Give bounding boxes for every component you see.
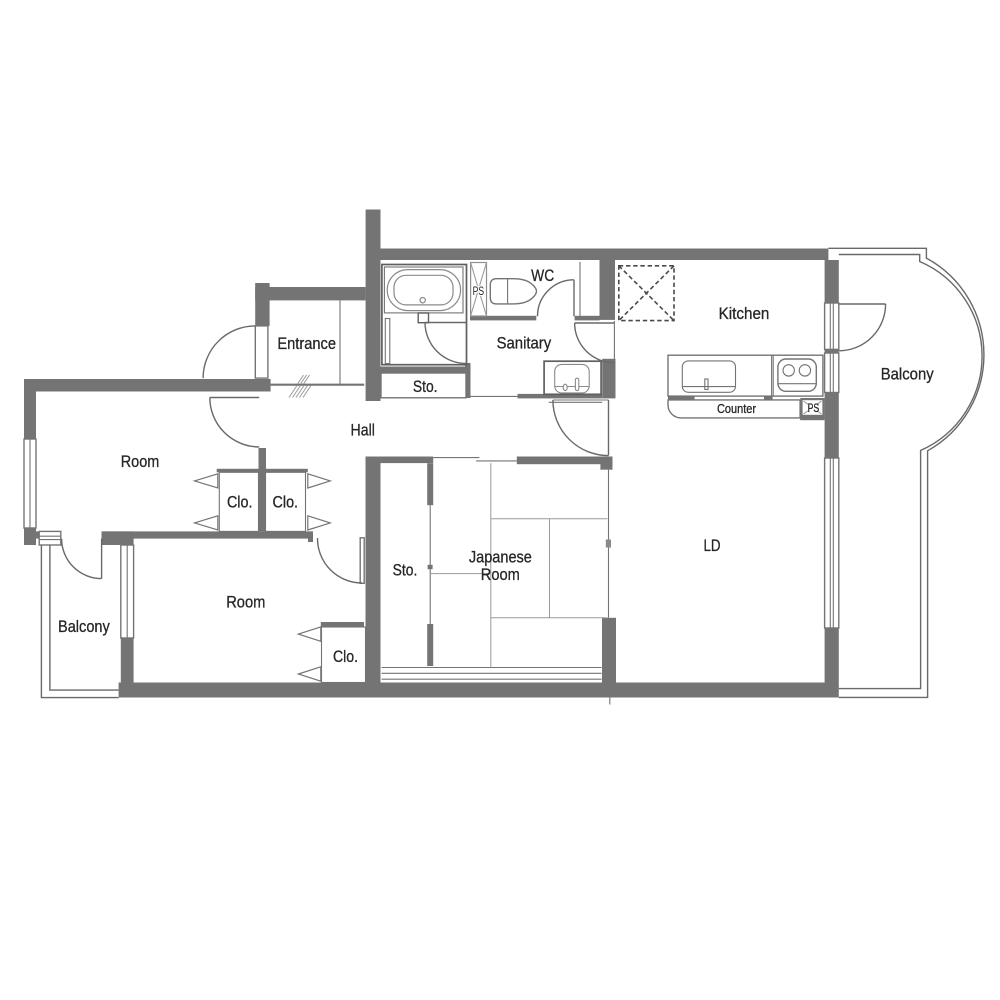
svg-text:Room: Room: [226, 593, 265, 612]
svg-text:Sanitary: Sanitary: [497, 334, 552, 353]
svg-text:Balcony: Balcony: [881, 365, 934, 384]
svg-text:PS: PS: [808, 403, 820, 415]
svg-text:Entrance: Entrance: [277, 334, 336, 353]
svg-text:Balcony: Balcony: [58, 617, 110, 636]
svg-text:Counter: Counter: [717, 401, 757, 416]
svg-text:Room: Room: [481, 565, 520, 584]
svg-text:Kitchen: Kitchen: [719, 304, 770, 323]
svg-text:Japanese: Japanese: [469, 547, 532, 566]
svg-text:Room: Room: [121, 452, 160, 471]
svg-text:Hall: Hall: [351, 421, 375, 440]
svg-text:Clo.: Clo.: [333, 648, 358, 666]
svg-text:LD: LD: [703, 537, 720, 555]
svg-text:Clo.: Clo.: [227, 494, 253, 512]
svg-text:WC: WC: [531, 266, 554, 285]
svg-text:Sto.: Sto.: [393, 561, 418, 580]
svg-text:Sto.: Sto.: [413, 377, 438, 396]
svg-text:PS: PS: [473, 286, 485, 298]
svg-text:Clo.: Clo.: [273, 494, 299, 512]
